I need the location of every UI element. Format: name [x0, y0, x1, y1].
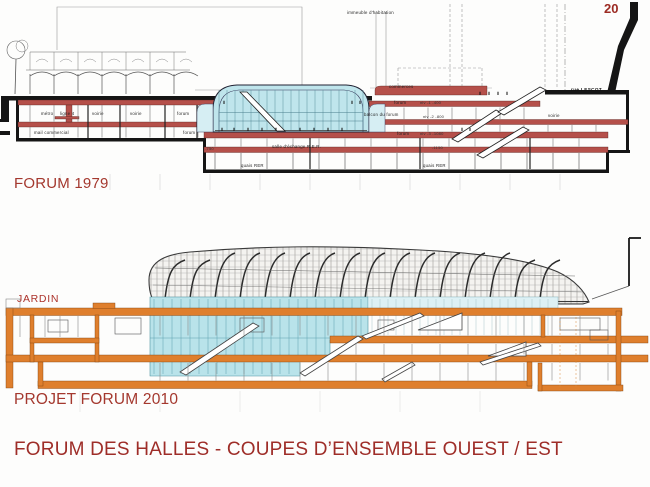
label-forum-b: forum [183, 130, 195, 135]
label-commerces: commerces [389, 84, 413, 89]
label-voirie-2: voirie [130, 111, 142, 116]
label-voirie-1: voirie [92, 111, 104, 116]
label-quais-rer-b: quais RER [423, 163, 446, 168]
jardin-label: JARDIN [17, 293, 59, 305]
label-metro: métro [41, 111, 54, 116]
projet-2010-caption: PROJET FORUM 2010 [14, 391, 178, 409]
page-title: FORUM DES HALLES - COUPES D’ENSEMBLE OUE… [14, 439, 563, 461]
label-voirie-3: voirie [548, 113, 560, 118]
building-envelope-lines [57, 4, 565, 92]
forum-1979-section: immeuble d'habitation commerces métro li… [0, 2, 638, 190]
label-ligne4: ligne 4 [60, 111, 75, 116]
label-1150: -1150 [432, 145, 444, 150]
label-balcon: balcon du forum [364, 112, 399, 117]
label-forum-n3: forum [397, 131, 409, 136]
forum-1979-caption: FORUM 1979 [14, 175, 109, 192]
label-immeuble: immeuble d'habitation [347, 10, 394, 15]
label-750: -750 [205, 146, 214, 151]
label-niv3: niv -3 -1080 [420, 131, 444, 136]
label-niv1: niv -1 -400 [420, 100, 442, 105]
canopy [149, 247, 589, 304]
label-mail-commercial: mail commercial [34, 130, 69, 135]
label-salle-echange: salle d'échange R.E.R. [272, 144, 321, 149]
sections-drawing: immeuble d'habitation commerces métro li… [0, 0, 650, 487]
atrium-1979 [197, 85, 385, 132]
label-forum-n1: forum [394, 100, 406, 105]
pile-lines [60, 174, 560, 190]
label-rue-lescot: rue LESCOT [571, 87, 602, 92]
page-number: 20 [604, 1, 618, 16]
label-quais-rer-a: quais RER [241, 163, 264, 168]
label-forum-a: forum [177, 111, 189, 116]
right-boundary-line [592, 238, 641, 299]
scanned-slide: immeuble d'habitation commerces métro li… [0, 0, 650, 487]
projet-2010-section [6, 238, 648, 412]
label-niv2: niv -2 -800 [423, 114, 445, 119]
axis-dashed-lines [560, 313, 576, 390]
